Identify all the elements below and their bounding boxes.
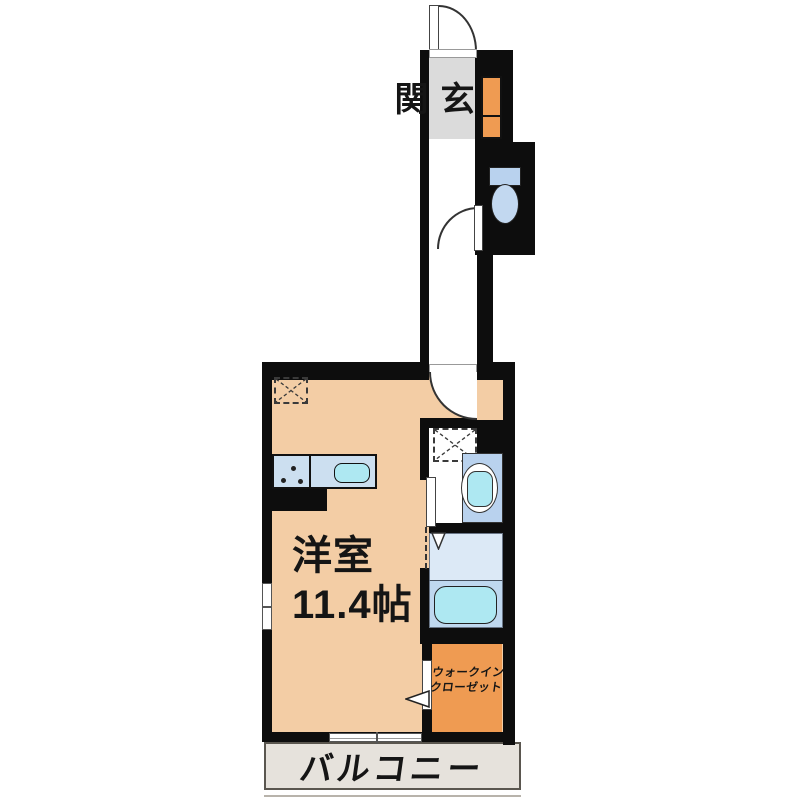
entrance-door-arc [439, 5, 477, 51]
toilet-door-leaf [474, 205, 483, 251]
room-right-wall [503, 380, 515, 745]
toilet-door-arc [437, 207, 478, 249]
dashed-x-icon [276, 379, 306, 402]
room-top-wall-right [477, 362, 515, 380]
bath-bottom-wall [420, 628, 503, 644]
closet-door-arrow [405, 690, 430, 708]
door-swing-triangle-icon [431, 532, 446, 550]
stove-burner-icon [281, 478, 286, 483]
bath-door-mark [431, 532, 446, 550]
kitchen-wall-stub [272, 489, 327, 511]
kitchen-sink-icon [334, 463, 370, 483]
kitchen-counter [272, 454, 377, 489]
vanity-basin-icon [467, 471, 493, 507]
left-window [262, 583, 272, 630]
shoe-cabinet-divider [483, 115, 500, 117]
entrance-label: 玄関 [431, 62, 477, 140]
washroom-folding-door-line [425, 527, 427, 569]
washroom-corner-wall [477, 420, 503, 453]
closet-left-wall-lower [422, 708, 432, 742]
room-left-wall [262, 362, 272, 742]
window-mullion [263, 606, 271, 608]
room-label: 洋室 11.4帖 [292, 532, 413, 630]
entrance-door-leaf [429, 5, 439, 51]
toilet-bowl-icon [491, 184, 519, 224]
floor-plan: バルコニー [0, 0, 800, 800]
arrow-left-icon [405, 690, 430, 708]
window-mullion [376, 732, 378, 744]
room-size-label: 11.4帖 [292, 581, 413, 630]
balcony-window [329, 733, 422, 742]
corridor-right-wall [477, 253, 493, 365]
counter-divider [309, 456, 311, 487]
balcony-label: バルコニー [263, 744, 522, 788]
ceiling-access-symbol [274, 377, 308, 404]
entrance-threshold [429, 49, 477, 58]
closet-label-line1: ウォークイン [431, 666, 505, 681]
balcony-floor: バルコニー [264, 742, 521, 790]
balcony-shadow-line [264, 795, 521, 797]
stove-burner-icon [298, 479, 303, 484]
closet-label-line2: クローゼット [429, 681, 503, 696]
washroom-left-wall [420, 418, 429, 480]
shoe-cabinet [481, 76, 502, 139]
walk-in-closet-label: ウォークイン クローゼット [429, 666, 505, 696]
room-name-label: 洋室 [292, 532, 413, 581]
stove-burner-icon [291, 466, 296, 471]
washroom-door-leaf [426, 477, 436, 527]
bathtub-icon [434, 586, 497, 624]
